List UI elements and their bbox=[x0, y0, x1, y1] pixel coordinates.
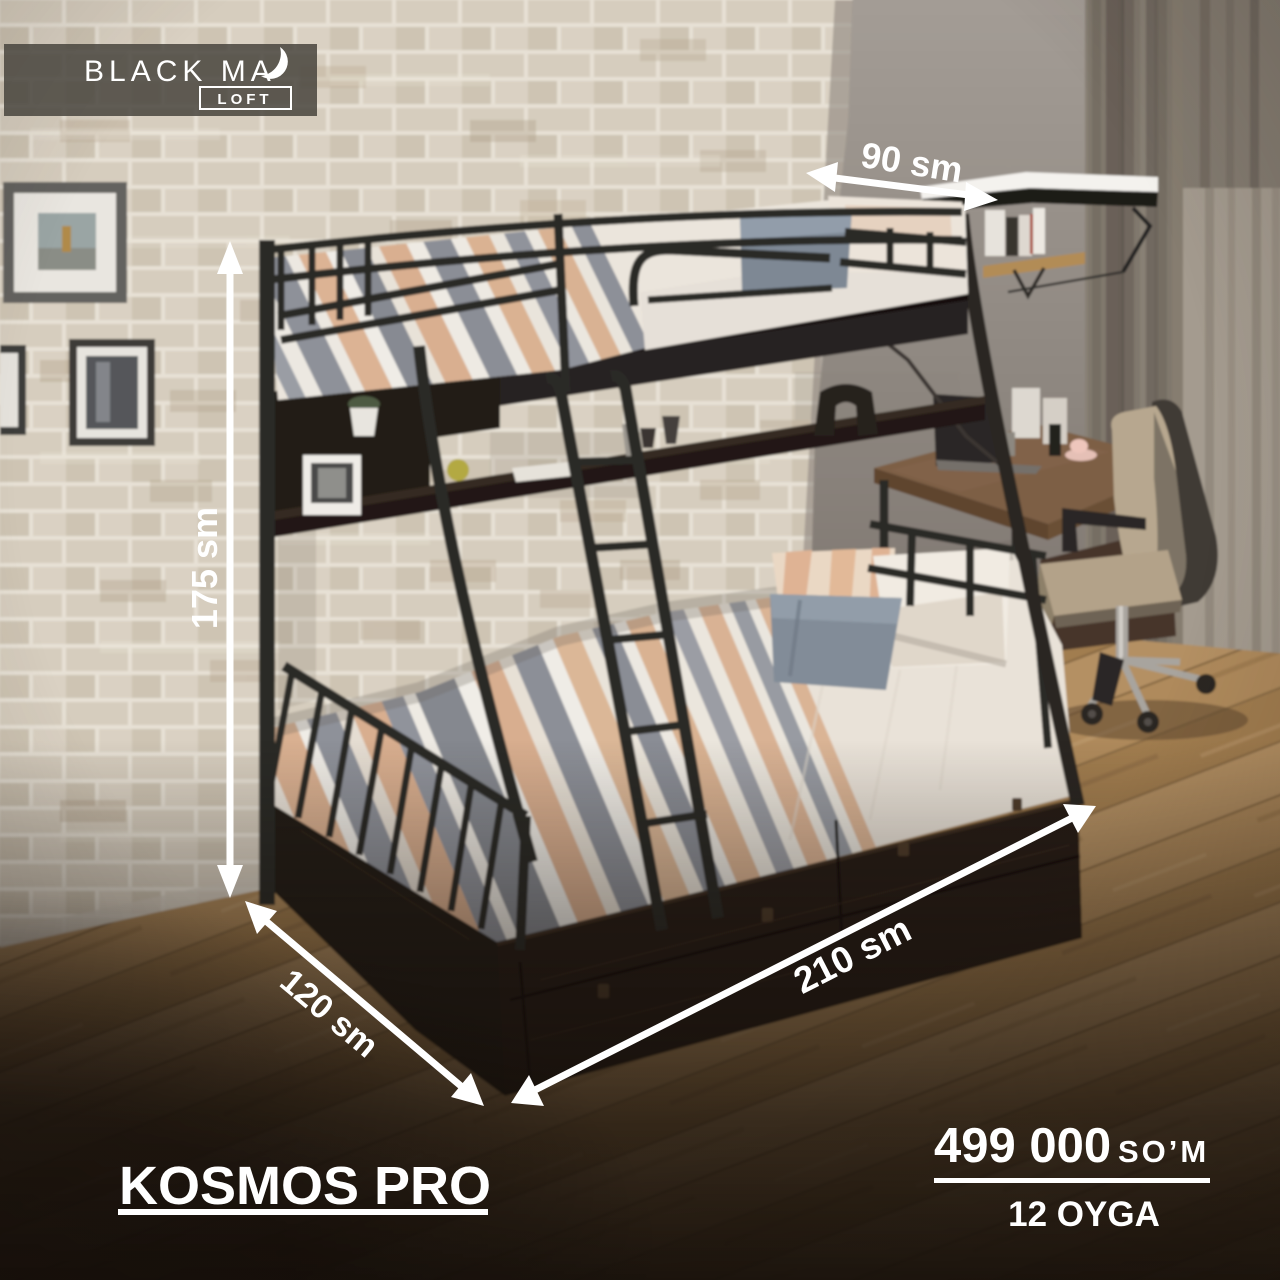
svg-text:12 OYGA: 12 OYGA bbox=[1008, 1195, 1160, 1234]
svg-text:SO’M: SO’M bbox=[1118, 1134, 1209, 1169]
svg-text:175 sm: 175 sm bbox=[184, 507, 225, 629]
svg-text:KOSMOS PRO: KOSMOS PRO bbox=[119, 1156, 491, 1216]
svg-text:499 000: 499 000 bbox=[934, 1119, 1111, 1173]
svg-text:BLACK MA: BLACK MA bbox=[84, 55, 276, 88]
svg-text:LOFT: LOFT bbox=[217, 91, 272, 108]
